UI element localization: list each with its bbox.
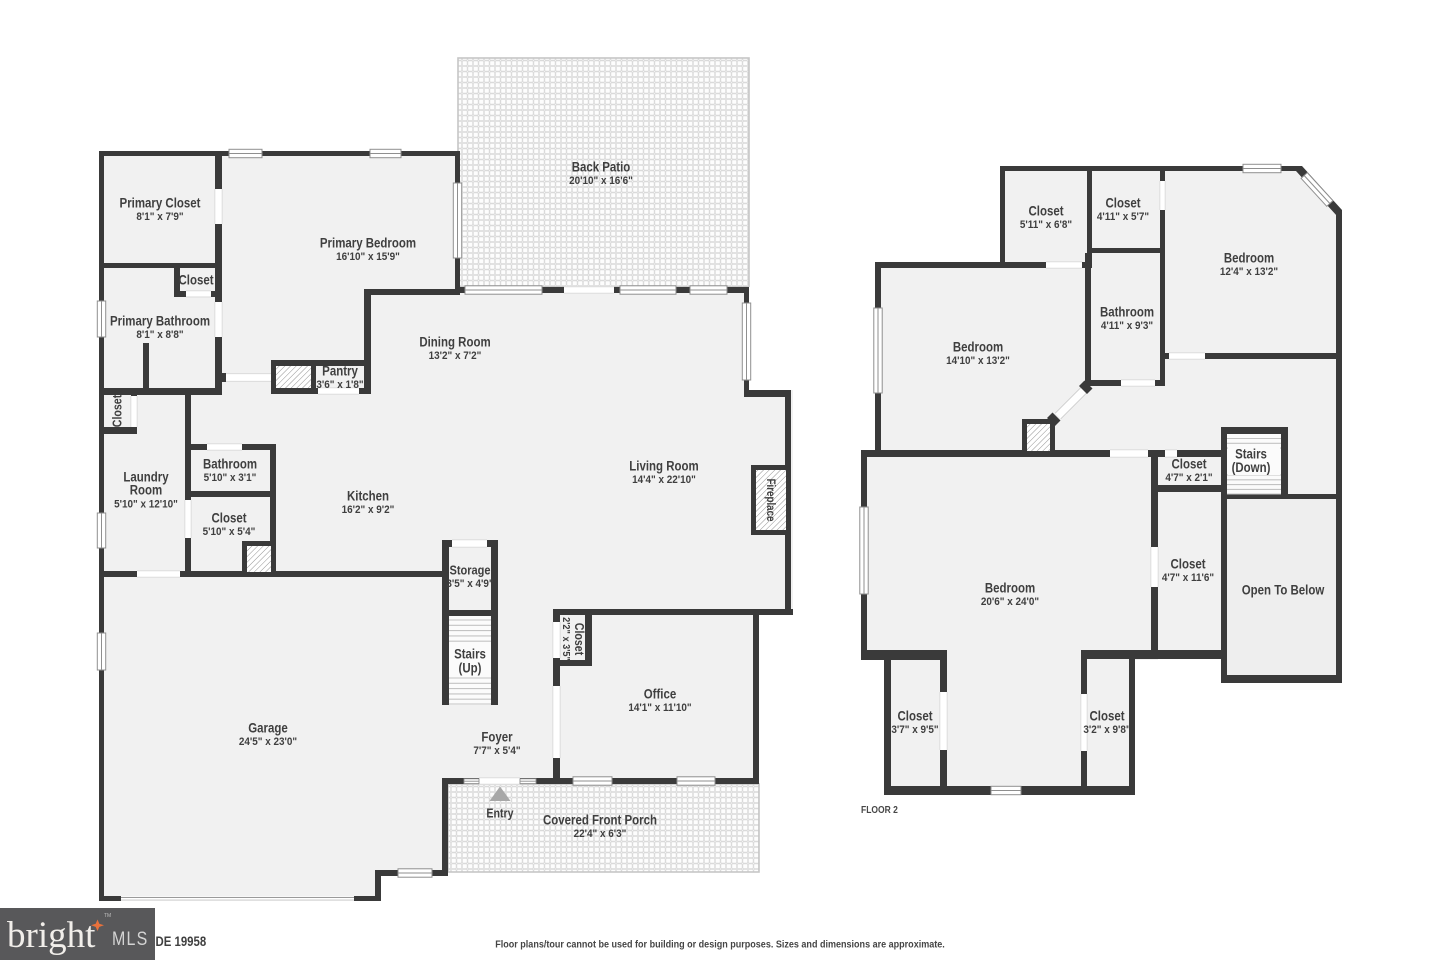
svg-text:20'6" x 24'0": 20'6" x 24'0" — [981, 596, 1039, 607]
svg-text:5'11" x 6'8": 5'11" x 6'8" — [1020, 219, 1072, 230]
svg-text:16'2" x 9'2": 16'2" x 9'2" — [342, 504, 395, 515]
svg-text:24'5" x 23'0": 24'5" x 23'0" — [239, 736, 297, 747]
svg-text:7'7" x 5'4": 7'7" x 5'4" — [473, 745, 520, 756]
svg-text:Closet: Closet — [1089, 709, 1125, 724]
svg-text:Primary Bathroom: Primary Bathroom — [110, 314, 210, 329]
svg-text:FLOOR 2: FLOOR 2 — [861, 804, 898, 816]
svg-text:Closet: Closet — [211, 511, 247, 526]
svg-text:3'7" x 9'5": 3'7" x 9'5" — [891, 724, 938, 735]
svg-text:5'10" x 5'4": 5'10" x 5'4" — [203, 526, 256, 537]
svg-text:Foyer: Foyer — [481, 730, 512, 745]
svg-text:Primary Closet: Primary Closet — [120, 196, 202, 211]
svg-text:5'10" x 12'10": 5'10" x 12'10" — [114, 499, 178, 510]
svg-text:MLS: MLS — [112, 928, 149, 950]
svg-text:Kitchen: Kitchen — [347, 489, 389, 504]
svg-text:Closet: Closet — [1028, 204, 1064, 219]
svg-text:Closet: Closet — [1171, 457, 1207, 472]
svg-text:3'2" x 9'8": 3'2" x 9'8" — [1083, 724, 1130, 735]
svg-text:13'2" x 7'2": 13'2" x 7'2" — [429, 350, 482, 361]
svg-text:(Down): (Down) — [1232, 460, 1271, 475]
svg-text:Bedroom: Bedroom — [985, 581, 1035, 596]
svg-text:14'10" x 13'2": 14'10" x 13'2" — [946, 355, 1010, 366]
svg-text:Garage: Garage — [248, 721, 288, 736]
svg-text:14'4" x 22'10": 14'4" x 22'10" — [632, 474, 696, 485]
svg-text:TM: TM — [104, 913, 111, 919]
svg-text:Bedroom: Bedroom — [953, 340, 1003, 355]
svg-text:20'10" x 16'6": 20'10" x 16'6" — [569, 175, 633, 186]
svg-text:Closet: Closet — [111, 395, 125, 428]
svg-text:Open To Below: Open To Below — [1242, 583, 1325, 598]
svg-text:14'1" x 11'10": 14'1" x 11'10" — [628, 702, 691, 713]
svg-text:Closet: Closet — [897, 709, 933, 724]
svg-text:Bathroom: Bathroom — [1100, 305, 1154, 320]
svg-text:4'11" x 5'7": 4'11" x 5'7" — [1097, 211, 1149, 222]
svg-text:Back Patio: Back Patio — [572, 160, 631, 175]
svg-text:Primary Bedroom: Primary Bedroom — [320, 236, 416, 251]
svg-text:Closet: Closet — [178, 273, 214, 288]
svg-text:8'1" x 7'9": 8'1" x 7'9" — [136, 211, 183, 222]
svg-text:5'10" x 3'1": 5'10" x 3'1" — [204, 472, 257, 483]
svg-text:Stairs: Stairs — [454, 647, 486, 662]
svg-text:12'4" x 13'2": 12'4" x 13'2" — [1220, 266, 1278, 277]
svg-text:(Up): (Up) — [459, 661, 482, 676]
svg-text:Covered Front Porch: Covered Front Porch — [543, 813, 657, 828]
svg-text:bright: bright — [7, 915, 96, 956]
svg-text:Closet: Closet — [1105, 196, 1141, 211]
svg-text:Entry: Entry — [486, 807, 514, 821]
svg-text:Office: Office — [644, 687, 677, 702]
svg-text:Pantry: Pantry — [322, 364, 358, 379]
svg-text:Closet: Closet — [572, 623, 586, 656]
svg-text:22'4" x 6'3": 22'4" x 6'3" — [574, 828, 627, 839]
svg-text:3'6" x 1'8": 3'6" x 1'8" — [316, 379, 363, 390]
svg-text:Storage: Storage — [449, 563, 490, 578]
svg-text:Living Room: Living Room — [629, 459, 698, 474]
svg-text:4'11" x 9'3": 4'11" x 9'3" — [1101, 320, 1153, 331]
svg-text:Bathroom: Bathroom — [203, 457, 257, 472]
svg-text:DE 19958: DE 19958 — [156, 934, 207, 949]
svg-text:4'7" x 2'1": 4'7" x 2'1" — [1165, 472, 1212, 483]
svg-text:3'5" x 4'9": 3'5" x 4'9" — [446, 578, 493, 589]
svg-text:Room: Room — [130, 483, 162, 498]
svg-text:2'2" x 3'5": 2'2" x 3'5" — [560, 617, 571, 661]
svg-text:Dining Room: Dining Room — [419, 335, 490, 350]
svg-text:Fireplace: Fireplace — [764, 479, 777, 522]
svg-text:4'7" x 11'6": 4'7" x 11'6" — [1162, 572, 1214, 583]
svg-text:Bedroom: Bedroom — [1224, 251, 1274, 266]
svg-text:Closet: Closet — [1170, 557, 1206, 572]
svg-text:8'1" x 8'8": 8'1" x 8'8" — [136, 329, 183, 340]
svg-text:16'10" x 15'9": 16'10" x 15'9" — [336, 251, 400, 262]
svg-text:Floor plans/tour cannot be use: Floor plans/tour cannot be used for buil… — [495, 939, 945, 951]
